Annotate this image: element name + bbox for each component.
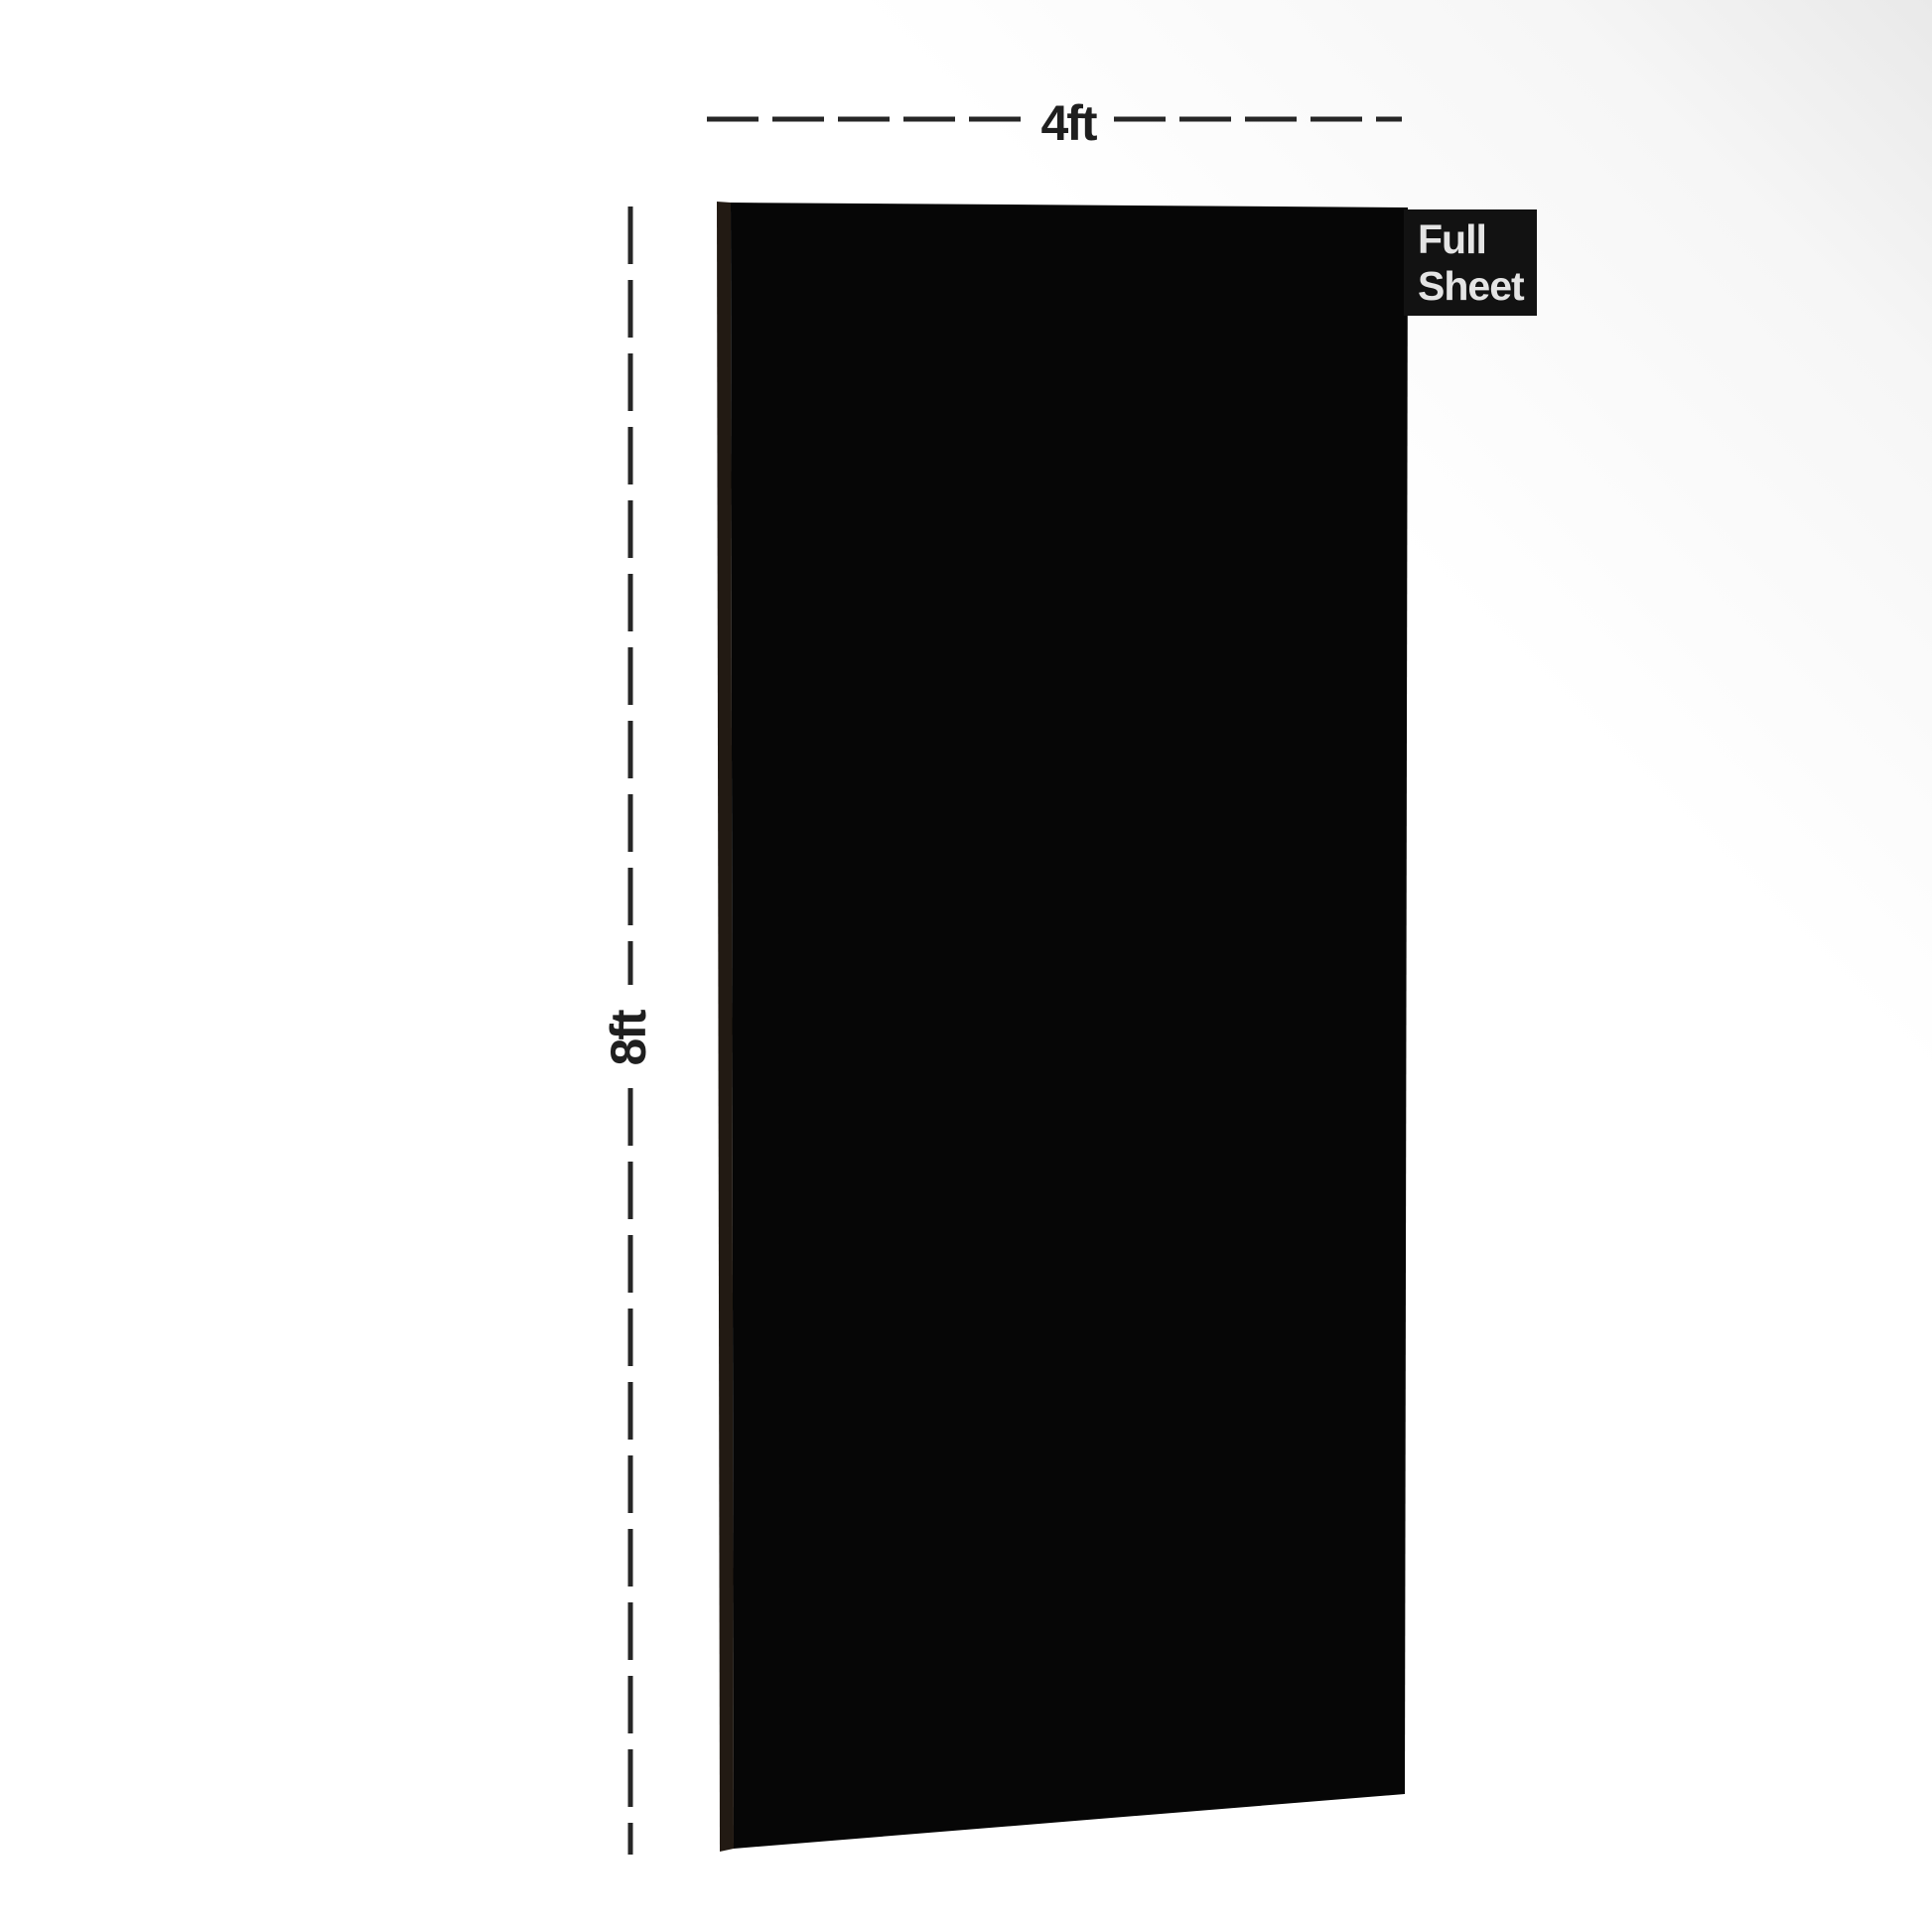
full-sheet-badge-line1: Full (1418, 216, 1537, 263)
product-diagram-canvas: 4ft 8ft Full Sheet (0, 0, 1932, 1932)
height-dimension-label: 8ft (600, 1011, 657, 1065)
sheet-diagram-scene (0, 0, 1932, 1932)
width-dimension-label: 4ft (1040, 94, 1095, 152)
full-sheet-badge-line2: Sheet (1418, 263, 1537, 310)
sheet-panel (731, 203, 1408, 1849)
full-sheet-badge: Full Sheet (1404, 209, 1537, 316)
